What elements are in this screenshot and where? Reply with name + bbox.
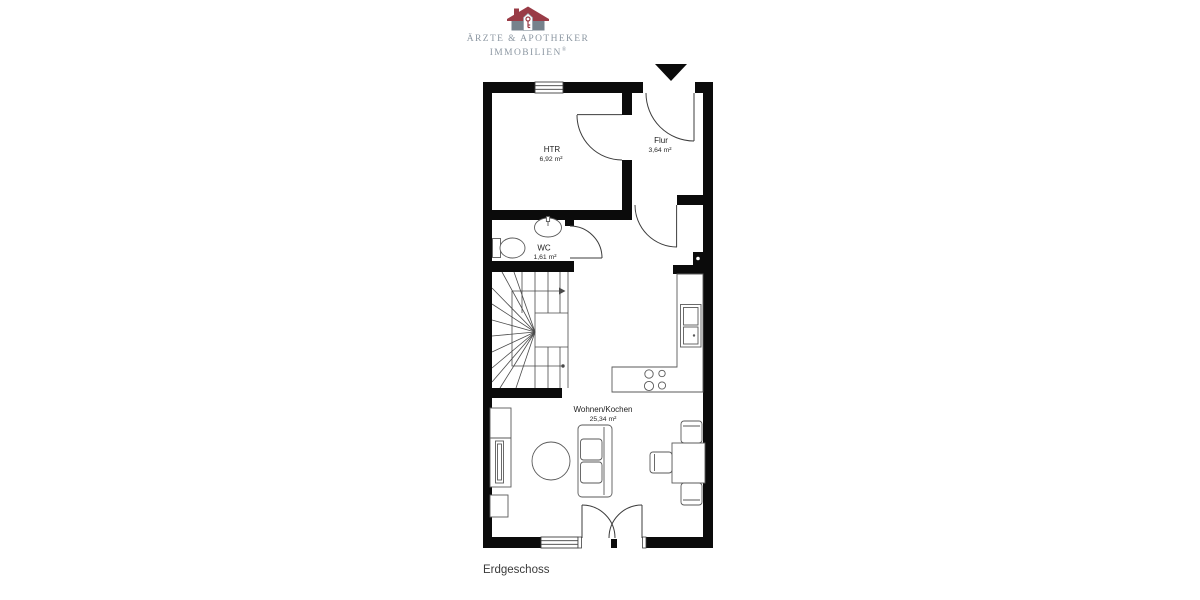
- room-area: 1,61 m²: [533, 254, 557, 261]
- coffee-table-icon: [532, 442, 570, 480]
- entrance-door-swing-icon: [646, 93, 694, 141]
- window-icon-bottom: [541, 537, 578, 548]
- window-icon-top: [535, 82, 563, 93]
- room-name: Flur: [654, 136, 668, 145]
- floor-plan: HTR 6,92 m² Flur 3,64 m² WC 1,61 m² Wohn…: [0, 0, 1200, 600]
- dining-table-icon: [672, 443, 705, 483]
- stairs-direction-arrow-icon: [559, 288, 566, 295]
- dining-chair-icon-bottom: [681, 483, 702, 505]
- toilet-icon: [493, 238, 526, 258]
- flur-door-swing-icon: [635, 205, 677, 247]
- room-area: 25,34 m²: [590, 416, 618, 423]
- htr-door-swing-icon: [577, 115, 622, 160]
- sofa-icon: [578, 425, 612, 497]
- pillar-dot: [696, 257, 700, 261]
- room-label-flur: Flur 3,64 m²: [648, 136, 672, 154]
- cooktop-icon: [644, 370, 665, 391]
- tv-sideboard-icon: [490, 408, 511, 517]
- room-label-wc: WC 1,61 m²: [533, 244, 557, 262]
- stairs-icon: [492, 272, 568, 388]
- room-label-htr: HTR 6,92 m²: [539, 145, 563, 163]
- room-area: 6,92 m²: [539, 156, 563, 163]
- floor-title: Erdgeschoss: [483, 564, 549, 576]
- room-label-wohnen-kochen: Wohnen/Kochen 25,34 m²: [573, 405, 632, 423]
- wc-door-swing-icon: [570, 226, 602, 258]
- page: ÄRZTE & APOTHEKER IMMOBILIEN®: [0, 0, 1200, 600]
- room-name: WC: [537, 244, 551, 253]
- dining-chair-icon-top: [681, 421, 702, 443]
- entrance-arrow-icon: [655, 64, 687, 81]
- dining-chair-icon-left: [650, 452, 672, 473]
- room-area: 3,64 m²: [648, 147, 672, 154]
- room-name: Wohnen/Kochen: [573, 405, 632, 414]
- kitchen-sink-icon: [681, 305, 702, 348]
- french-doors-icon: [578, 505, 646, 548]
- room-name: HTR: [544, 145, 561, 154]
